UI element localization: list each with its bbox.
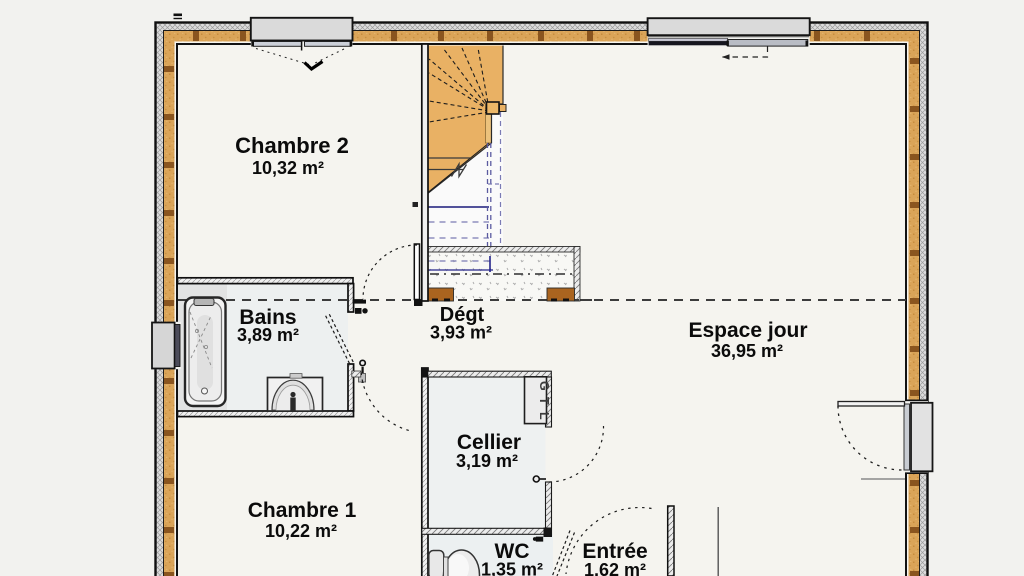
svg-text:3,19 m²: 3,19 m²: [456, 451, 518, 471]
svg-text:3,89 m²: 3,89 m²: [237, 325, 299, 345]
svg-text:10,22 m²: 10,22 m²: [265, 521, 337, 541]
svg-text:36,95 m²: 36,95 m²: [711, 341, 783, 361]
svg-text:Espace jour: Espace jour: [688, 319, 807, 342]
svg-text:10,32 m²: 10,32 m²: [252, 158, 324, 178]
svg-text:T: T: [537, 397, 551, 405]
svg-text:G: G: [537, 381, 551, 391]
svg-text:Chambre 2: Chambre 2: [235, 133, 349, 158]
svg-text:1,62 m²: 1,62 m²: [584, 560, 646, 576]
svg-text:1,35 m²: 1,35 m²: [481, 560, 543, 576]
svg-text:3,93 m²: 3,93 m²: [430, 323, 492, 343]
svg-text:Chambre 1: Chambre 1: [248, 499, 357, 522]
svg-text:L: L: [537, 412, 551, 420]
